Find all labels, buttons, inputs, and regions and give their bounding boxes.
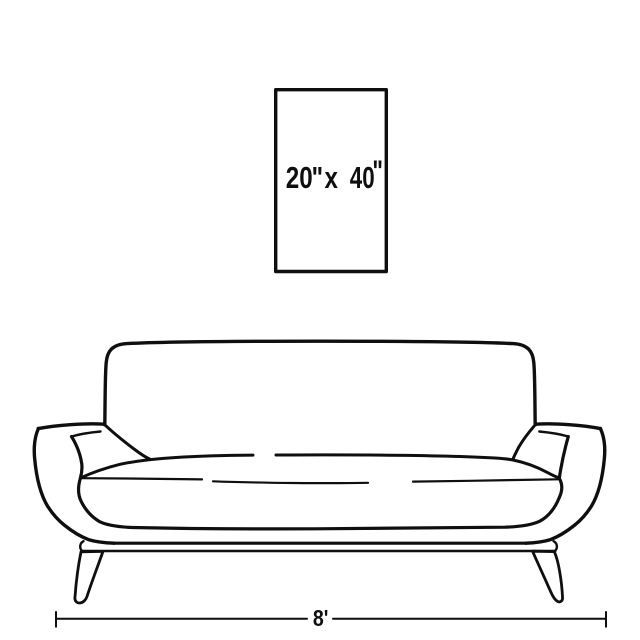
svg-text:20: 20 — [286, 160, 313, 195]
svg-text:": " — [312, 160, 323, 195]
svg-text:40: 40 — [350, 160, 375, 194]
svg-text:8': 8' — [313, 606, 329, 632]
svg-text:": " — [372, 154, 383, 188]
svg-text:x: x — [325, 160, 339, 195]
